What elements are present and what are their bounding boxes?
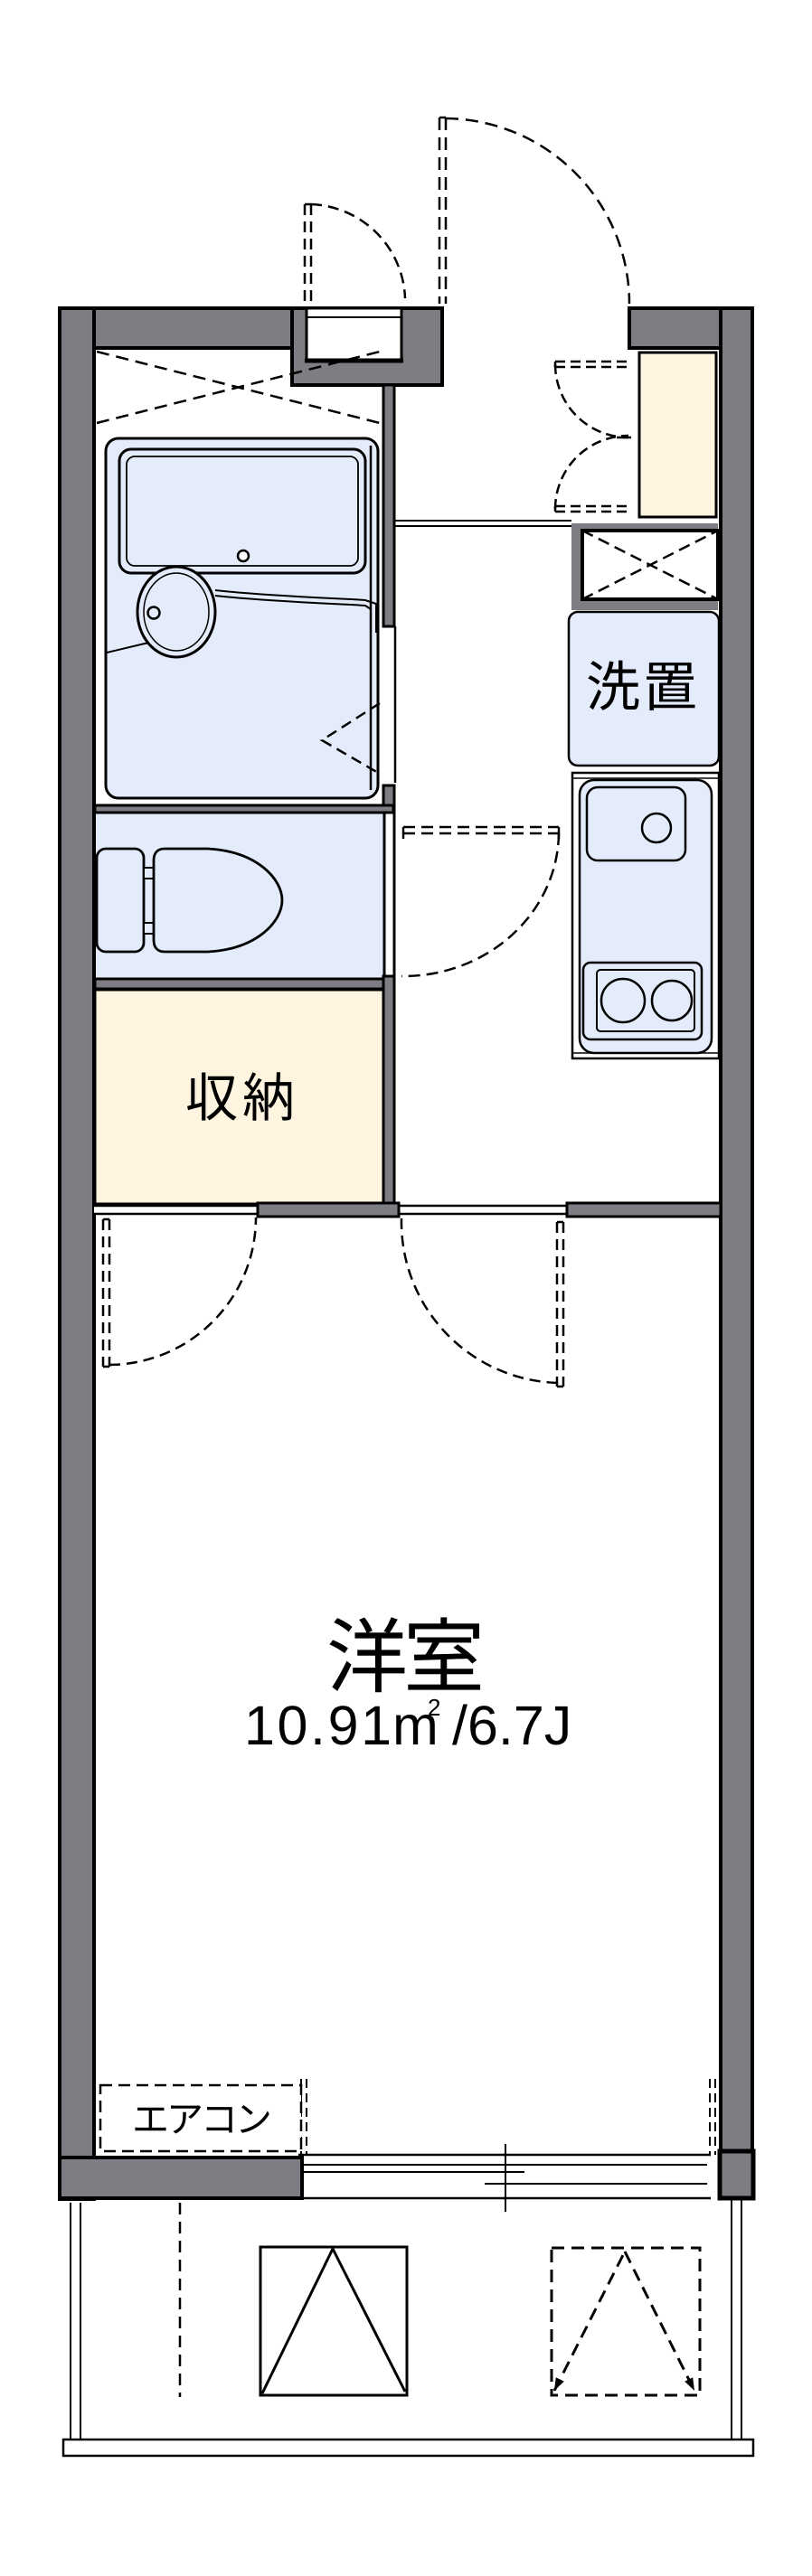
svg-text:10.91m2/6.7J: 10.91m2/6.7J xyxy=(244,1694,571,1756)
